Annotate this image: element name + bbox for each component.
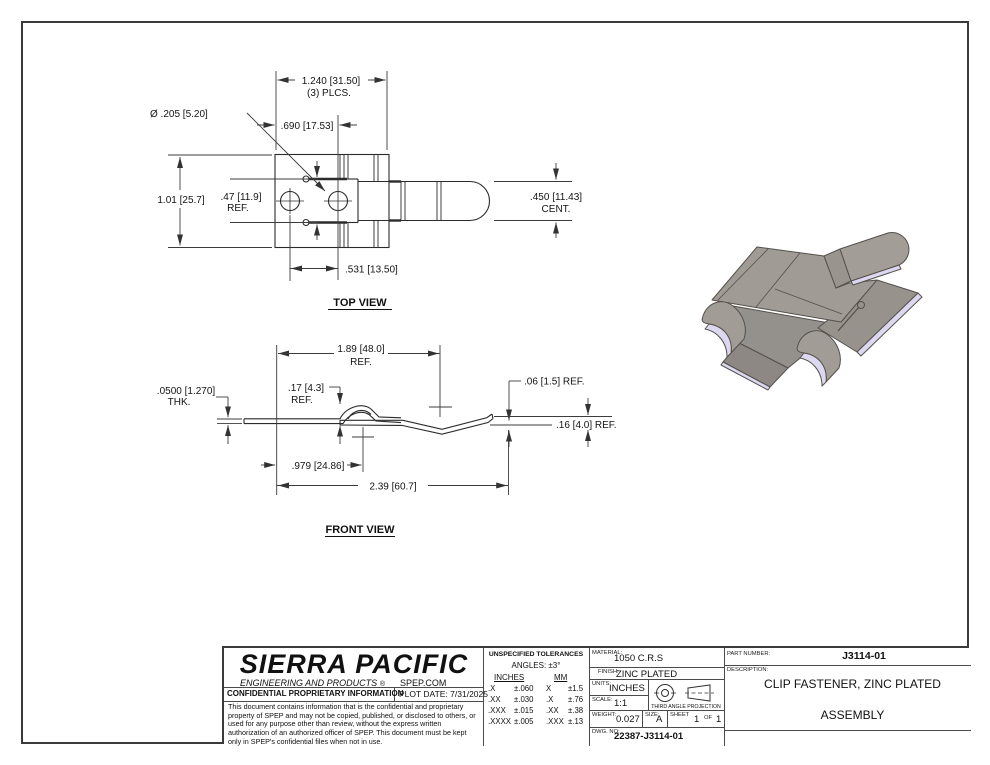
tol-value: ±.38 (568, 706, 586, 715)
scale-label: SCALE: (592, 697, 613, 703)
description-line2: ASSEMBLY (734, 708, 971, 722)
dim-overall-length: 2.39 [60.7] (369, 482, 416, 493)
tol-label: X (546, 684, 568, 693)
tol-label: .XXXX (488, 717, 514, 726)
description-label: DESCRIPTION: (727, 667, 768, 673)
dim-hole-offset: .690 [17.53] (281, 121, 334, 132)
projection-label: THIRD ANGLE PROJECTION (648, 704, 724, 710)
plot-date: PLOT DATE: 7/31/2025 (399, 689, 488, 699)
registered-mark: ® (380, 681, 385, 688)
top-view-tongue-cap (470, 182, 490, 221)
tagline-text: ENGINEERING AND PRODUCTS (240, 678, 377, 688)
dim-arch-height-ref: REF. (291, 395, 313, 406)
weight-value: 0.027 (616, 714, 640, 725)
dim-overall-width: 1.240 [31.50] (302, 76, 361, 87)
dim-slot-height: .47 [11.9] (221, 192, 262, 203)
divider (589, 695, 648, 696)
tolerances-col-inches: INCHES (494, 673, 524, 682)
tol-value: ±1.5 (568, 684, 586, 693)
tol-label: .X (546, 695, 568, 704)
dim-thickness-note: THK. (168, 397, 191, 408)
description-line1: CLIP FASTENER, ZINC PLATED (734, 677, 971, 691)
top-view-dimensions (168, 71, 572, 281)
tolerances-header: UNSPECIFIED TOLERANCES (485, 651, 587, 658)
sheet-total: 1 (716, 714, 721, 725)
dim-arch-height: .17 [4.3] (288, 383, 324, 394)
sheet-label: SHEET (670, 712, 689, 718)
dim-end-height: .16 [4.0] REF. (556, 420, 617, 431)
divider (589, 648, 590, 746)
front-view-texts: 1.89 [48.0] REF. .0500 [1.270] THK. .17 … (157, 344, 617, 537)
finish-value: ZINC PLATED (616, 669, 677, 680)
size-value: A (656, 714, 662, 725)
divider (589, 727, 724, 728)
front-view-title: FRONT VIEW (325, 524, 395, 536)
dim-height: 1.01 [25.7] (157, 195, 204, 206)
tol-value: ±.060 (514, 684, 546, 693)
dwg-no-value: 22387-J3114-01 (614, 731, 683, 742)
tolerance-row: .X±.060X±1.5 (488, 684, 586, 693)
company-tagline: ENGINEERING AND PRODUCTS ® (240, 678, 385, 688)
divider (667, 710, 668, 727)
front-view-dimensions (216, 345, 612, 495)
top-view-title: TOP VIEW (333, 297, 387, 309)
tol-value: ±.015 (514, 706, 546, 715)
tolerance-row: .XX±.030.X±.76 (488, 695, 586, 704)
dim-thickness: .0500 [1.270] (157, 386, 216, 397)
dim-body-length: 1.89 [48.0] (337, 344, 384, 355)
divider (642, 710, 643, 727)
tol-label: .X (488, 684, 514, 693)
dim-hole-dia: Ø .205 [5.20] (150, 109, 208, 120)
tol-value: ±.76 (568, 695, 586, 704)
third-angle-projection-icon (652, 681, 722, 705)
weight-label: WEIGHT: (592, 712, 616, 718)
tol-value: ±.005 (514, 717, 546, 726)
tolerance-row: .XXXX±.005.XXX±.13 (488, 717, 586, 726)
top-view-texts: 1.240 [31.50] (3) PLCS. Ø .205 [5.20] .6… (150, 76, 582, 310)
divider (589, 710, 724, 711)
company-website: SPEP.COM (400, 678, 446, 688)
tol-label: .XX (488, 695, 514, 704)
divider (724, 665, 971, 666)
tol-value: ±.13 (568, 717, 586, 726)
title-block: SIERRA PACIFIC ENGINEERING AND PRODUCTS … (222, 646, 969, 744)
dim-tip-rise: .06 [1.5] REF. (524, 377, 585, 388)
tolerance-row: .XXX±.015.XX±.38 (488, 706, 586, 715)
tolerances-angles: ANGLES: ±3° (485, 661, 587, 670)
dim-arch-center: .979 [24.86] (292, 461, 345, 472)
iso-view (702, 233, 922, 390)
company-name: SIERRA PACIFIC (234, 649, 474, 680)
dim-tongue-width-note: CENT. (542, 204, 571, 215)
divider (724, 730, 971, 731)
units-value: INCHES (609, 683, 645, 694)
top-view (275, 155, 490, 248)
sheet-number: 1 (694, 714, 699, 725)
dim-body-length-ref: REF. (350, 357, 372, 368)
material-value: 1050 C.R.S (614, 653, 663, 664)
part-number-value: J3114-01 (764, 650, 964, 662)
drawing-sheet: 1.240 [31.50] (3) PLCS. Ø .205 [5.20] .6… (0, 0, 990, 765)
dim-overall-note: (3) PLCS. (307, 88, 351, 99)
divider (724, 648, 725, 746)
tol-label: .XXX (488, 706, 514, 715)
front-view (244, 406, 493, 434)
scale-value: 1:1 (614, 698, 627, 709)
dim-hole-spacing: .531 [13.50] (345, 265, 398, 276)
disclaimer-text: This document contains information that … (228, 703, 479, 747)
tol-value: ±.030 (514, 695, 546, 704)
tol-label: .XXX (546, 717, 568, 726)
tol-label: .XX (546, 706, 568, 715)
confidential-header: CONFIDENTIAL PROPRIETARY INFORMATION (227, 689, 403, 698)
tolerances-col-mm: MM (554, 673, 567, 682)
dim-tongue-width: .450 [11.43] (530, 192, 582, 203)
sheet-of-label: OF (704, 715, 712, 721)
dim-slot-height-ref: REF. (227, 203, 249, 214)
